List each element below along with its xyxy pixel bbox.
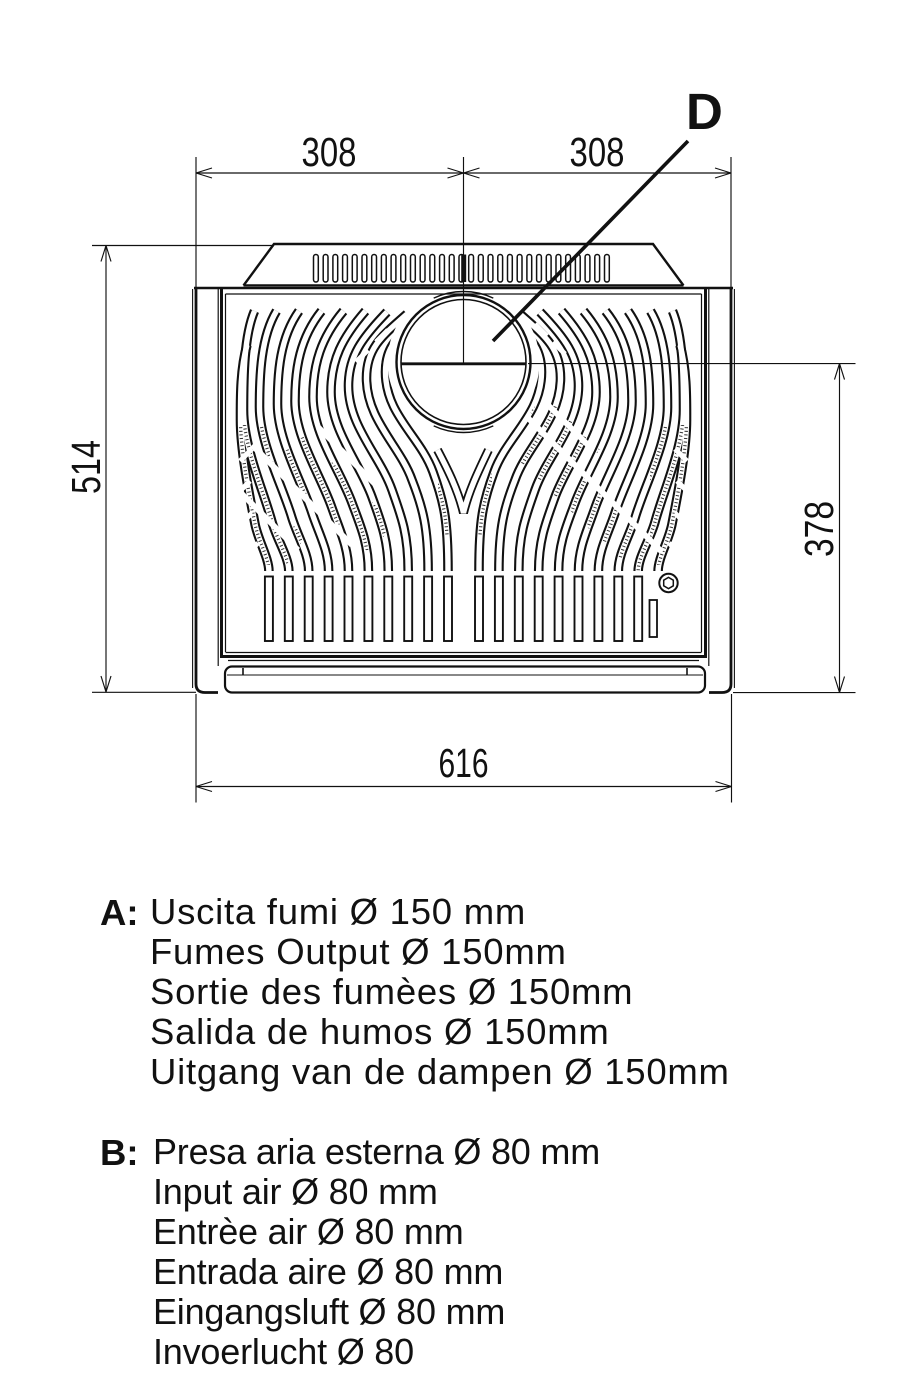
svg-text:308: 308 bbox=[302, 129, 357, 175]
svg-text:D: D bbox=[686, 83, 723, 140]
svg-text:378: 378 bbox=[796, 501, 842, 557]
svg-text:514: 514 bbox=[63, 440, 109, 494]
svg-text:616: 616 bbox=[439, 740, 489, 786]
svg-text:308: 308 bbox=[570, 129, 625, 175]
